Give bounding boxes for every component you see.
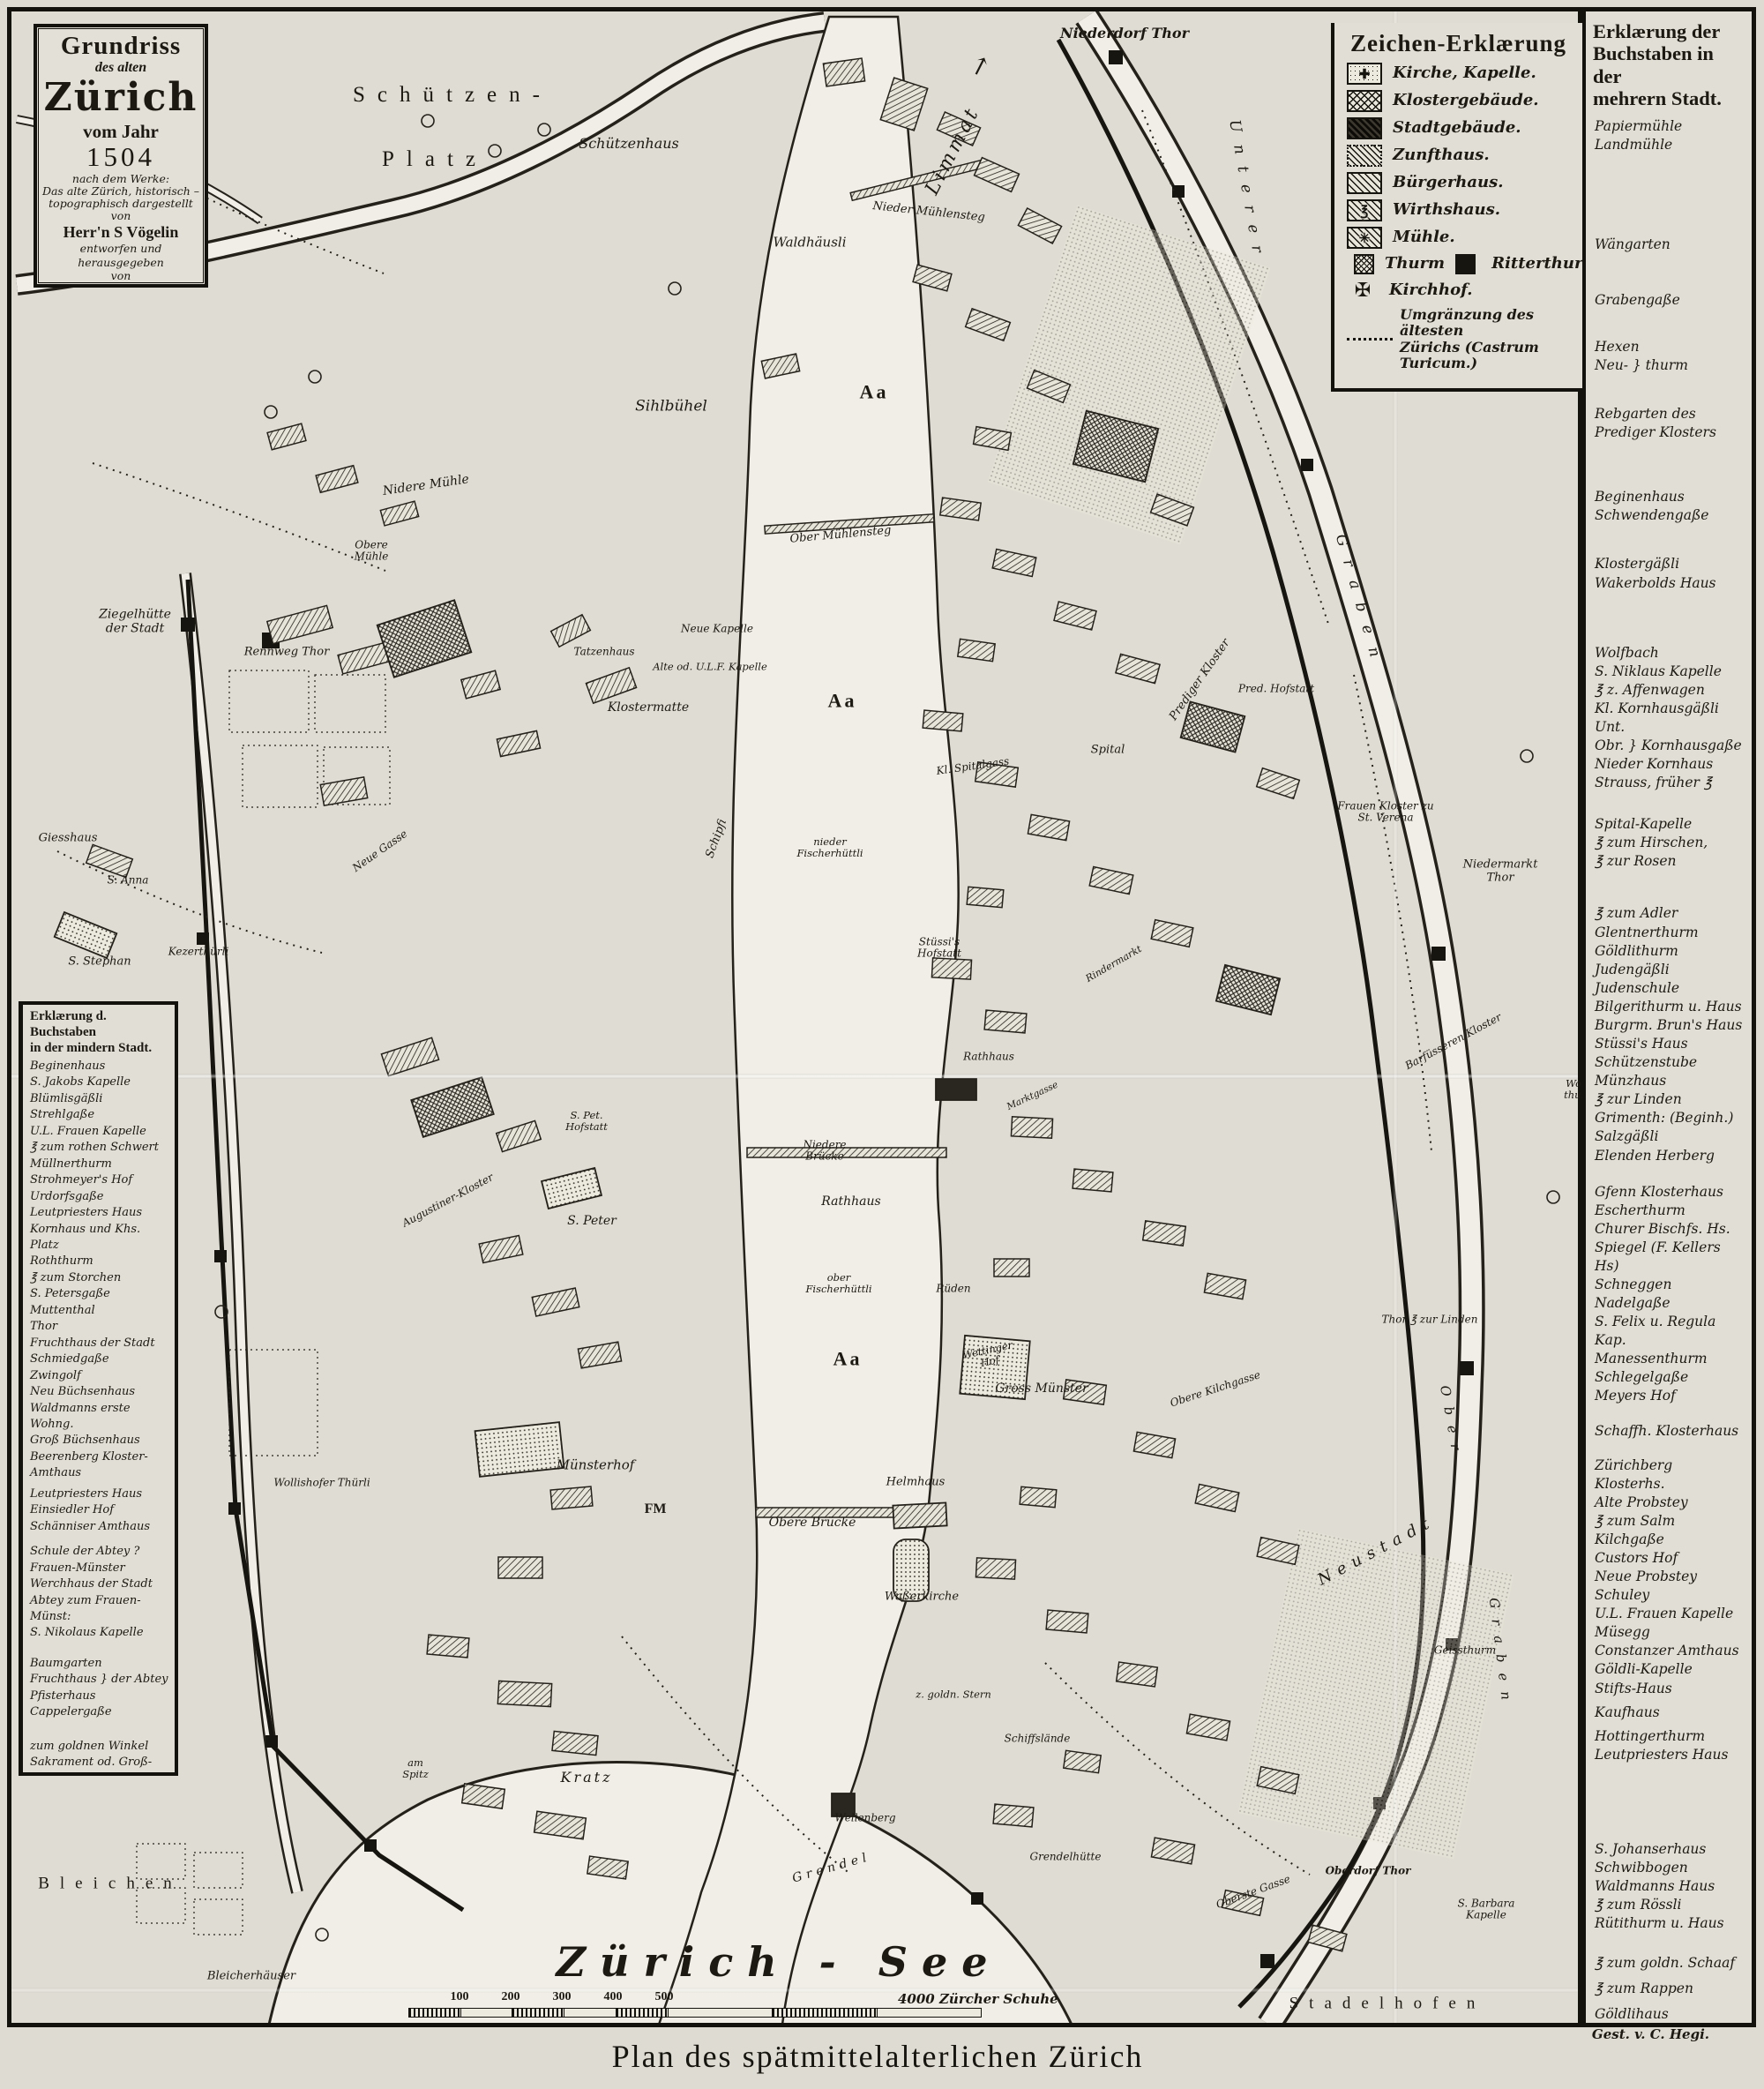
scale-segment xyxy=(669,2009,773,2017)
key-item: Spiegel (F. Kellers Hs) xyxy=(1595,1239,1746,1276)
key-item: Groß Büchsenhaus xyxy=(30,1433,171,1449)
key-item: S. Petersgaße xyxy=(30,1286,171,1302)
map-plate: Schützen-PlatzSchützenhausWaldhäusliNied… xyxy=(7,7,1582,2027)
map-label: Waldhäusli xyxy=(773,236,846,251)
key-item: Constanzer Amthaus xyxy=(1595,1642,1746,1660)
map-label: Obere Mühle xyxy=(355,540,389,564)
key-item: Neu Büchsenhaus xyxy=(30,1384,171,1400)
cartouche-line: vom Jahr xyxy=(37,122,205,143)
scale-segment xyxy=(512,2009,564,2017)
key-item: ℥ zum Rössli xyxy=(1595,1896,1746,1914)
key-item: Glentnerthurm xyxy=(1595,924,1746,942)
key-item: Spital-Kapelle xyxy=(1595,815,1746,834)
key-item: zum goldnen Winkel Sakrament od. Groß-Ha… xyxy=(30,1739,171,1776)
map-label: Oberdorf Thor xyxy=(1326,1865,1411,1876)
key-item: Bilgerithurm u. Haus xyxy=(1595,998,1746,1016)
key-item: Roththurm xyxy=(30,1254,171,1269)
major-city-key-list: PapiermühleLandmühleWängartenGrabengaßeH… xyxy=(1595,117,1746,2027)
map-label: Stadelhofen xyxy=(1289,1994,1486,2012)
stadtgebaeude-swatch-icon xyxy=(1347,117,1382,139)
buergerhaus-swatch-icon xyxy=(1347,172,1382,194)
key-item: Elenden Herberg xyxy=(1595,1147,1746,1165)
key-item: Kilchgaße xyxy=(1595,1531,1746,1549)
scale-segment xyxy=(617,2009,669,2017)
map-label: Oberste Gasse xyxy=(1215,1874,1292,1912)
map-label: Wellenberg xyxy=(834,1812,895,1823)
key-item: Leutpriesters Haus xyxy=(1595,1746,1746,1764)
legend-label: Kirchhof. xyxy=(1389,281,1472,300)
key-item: S. Nikolaus Kapelle xyxy=(30,1625,171,1641)
major-city-key-title: Erklærung der Buchstaben in der mehrern … xyxy=(1593,20,1746,110)
key-item: Zwingolf xyxy=(30,1368,171,1384)
map-label: S. Anna xyxy=(108,874,149,886)
wirthshaus-swatch-icon: ℥ xyxy=(1347,199,1382,221)
fold-crease xyxy=(11,1074,1578,1079)
key-item: Rebgarten des Prediger Klosters xyxy=(1595,405,1746,442)
key-item: Klostergäßli Wakerbolds Haus xyxy=(1595,555,1746,592)
map-label: Niedere Brücke xyxy=(803,1140,846,1164)
key-item: Wängarten xyxy=(1595,236,1746,254)
map-label: Schipfi xyxy=(704,818,729,860)
map-label: Tatzenhaus xyxy=(574,646,635,657)
scale-bar: 100200300400500 4000 Zürcher Schuhe xyxy=(408,1993,990,2023)
map-label: Platz xyxy=(382,147,488,172)
key-item: S. Johanserhaus xyxy=(1595,1840,1746,1859)
cartouche-line: Herr'n S Vögelin xyxy=(37,223,205,241)
key-item: Göldlihaus xyxy=(1595,2005,1746,2024)
key-item: Blümlisgäßli xyxy=(30,1091,171,1107)
key-item: Göldlithurm xyxy=(1595,942,1746,961)
map-label: S. Peter xyxy=(567,1215,617,1229)
key-item: Strauss, früher ℥ xyxy=(1595,774,1746,792)
scale-tick-label: 400 xyxy=(604,1990,623,2004)
minor-city-key-list: BeginenhausS. Jakobs KapelleBlümlisgäßli… xyxy=(30,1059,171,1776)
key-item: Schänniser Amthaus xyxy=(30,1519,171,1535)
key-item: ℥ zur Rosen xyxy=(1595,852,1746,871)
map-label: Spital xyxy=(1091,745,1125,758)
key-item: Beerenberg Kloster-Amthaus xyxy=(30,1449,171,1482)
map-label: Unterer xyxy=(1225,118,1267,266)
legend-row-zunft: Zunfthaus. xyxy=(1347,145,1597,167)
map-label: Obere Brücke xyxy=(769,1516,856,1531)
major-city-key: Erklærung der Buchstaben in der mehrern … xyxy=(1582,7,1756,2027)
map-label: Graben xyxy=(1332,533,1387,673)
map-label: Neue Gasse xyxy=(350,828,409,875)
map-label: ober Fischerhüttli xyxy=(805,1272,871,1295)
key-item: Müllnerthurm xyxy=(30,1157,171,1172)
key-item: Schneggen xyxy=(1595,1276,1746,1294)
map-label: nieder Fischerhüttli xyxy=(796,836,863,859)
key-item: ℥ zum Rappen xyxy=(1595,1980,1746,1998)
legend-row-muehle: ✳ Mühle. xyxy=(1347,227,1597,249)
map-sheet: Schützen-PlatzSchützenhausWaldhäusliNied… xyxy=(0,0,1764,2089)
key-item: Alte Probstey xyxy=(1595,1494,1746,1512)
map-label: S. Barbara Kapelle xyxy=(1440,1898,1532,1922)
kirche-swatch-icon: ✚ xyxy=(1347,63,1382,85)
key-item: Kornhaus und Khs. Platz xyxy=(30,1222,171,1254)
map-label: Stüssi's Hofstatt xyxy=(917,937,961,961)
key-item: Meyers Hof xyxy=(1595,1387,1746,1405)
map-label: Prediger Kloster xyxy=(1168,637,1233,723)
scale-bar-rule xyxy=(408,2008,982,2018)
map-label: Nieder Mühlensteg xyxy=(872,200,986,225)
key-item: S. Niklaus Kapelle xyxy=(1595,663,1746,681)
key-item: Schule der Abtey ? xyxy=(30,1544,171,1560)
scale-unit-label: 4000 Zürcher Schuhe xyxy=(898,1991,1058,2007)
ritterthurm-swatch-icon xyxy=(1455,254,1476,274)
muehle-swatch-icon: ✳ xyxy=(1347,227,1382,249)
scale-segment xyxy=(773,2009,877,2017)
key-item: Judengäßli xyxy=(1595,961,1746,979)
key-item: Abtey zum Frauen-Münst: xyxy=(30,1593,171,1626)
map-label: Nidere Mühle xyxy=(382,473,470,498)
scale-segment xyxy=(461,2009,513,2017)
map-label: Rathhaus xyxy=(821,1195,880,1209)
key-item: Unt. Obr. } Kornhausgaße xyxy=(1595,718,1746,755)
plate-caption: Plan des spätmittelalterlichen Zürich xyxy=(0,2038,1755,2075)
map-label: Rindermarkt xyxy=(1084,944,1144,985)
legend-label: Klostergebäude. xyxy=(1393,92,1539,110)
key-item: Burgrm. Brun's Haus xyxy=(1595,1016,1746,1035)
map-label: Marktgasse xyxy=(1005,1080,1060,1112)
legend-label: Stadtgebäude. xyxy=(1393,119,1521,138)
legend-row-umgraenzung: Umgränzung des ältesten Zürichs (Castrum… xyxy=(1347,307,1597,372)
map-label: Rüden xyxy=(936,1283,970,1294)
map-label: Kl. Spitalgass xyxy=(936,756,1010,778)
legend-row-thurm: Thurm Ritterthurm. xyxy=(1347,254,1597,274)
key-item: Custors Hof xyxy=(1595,1549,1746,1568)
legend-row-buerger: Bürgerhaus. xyxy=(1347,172,1597,194)
map-label: Obere Kilchgasse xyxy=(1169,1369,1262,1410)
key-item: Strohmeyer's Hof xyxy=(30,1172,171,1188)
map-label: Graben xyxy=(1486,1597,1514,1711)
key-item: Escherthurm xyxy=(1595,1202,1746,1220)
cartouche-line: des alten xyxy=(37,60,205,76)
key-item: Leutpriesters Haus xyxy=(30,1205,171,1221)
map-label: Barfüsseren Kloster xyxy=(1403,1012,1504,1073)
key-item: Rütithurm u. Haus xyxy=(1595,1914,1746,1933)
map-label: Wollishofer Thürli xyxy=(273,1477,370,1488)
cartouche-line: 1504 xyxy=(37,142,205,173)
map-label: Bleichen xyxy=(38,1874,183,1892)
key-item: Schlegelgaße xyxy=(1595,1368,1746,1387)
key-item: S. Jakobs Kapelle xyxy=(30,1074,171,1090)
cartouche-line: Zürich xyxy=(37,76,205,119)
key-item: Schaffh. Klosterhaus xyxy=(1595,1422,1746,1441)
legend-row-wirth: ℥ Wirthshaus. xyxy=(1347,199,1597,221)
scale-tick-label: 100 xyxy=(451,1990,469,2004)
legend-label: Bürgerhaus. xyxy=(1393,174,1504,192)
map-label: Grendelhütte xyxy=(1030,1851,1102,1862)
key-item: Gfenn Klosterhaus xyxy=(1595,1183,1746,1202)
map-label: Geissthurm xyxy=(1434,1644,1496,1656)
key-item: Cappelergaße xyxy=(30,1704,171,1720)
key-item: Schwibbogen xyxy=(1595,1859,1746,1877)
key-item: Frauen-Münster xyxy=(30,1561,171,1576)
title-cartouche: Grundrissdes altenZürichvom Jahr1504nach… xyxy=(34,24,208,288)
map-label: Klostermatte xyxy=(608,701,689,715)
key-item: Churer Bischfs. Hs. xyxy=(1595,1220,1746,1239)
legend-row-kirche: ✚ Kirche, Kapelle. xyxy=(1347,63,1597,85)
key-item: Beginenhaus Schwendengaße xyxy=(1595,488,1746,525)
cartouche-line: Grundriss xyxy=(37,32,205,60)
map-label: Kratz xyxy=(561,1770,613,1786)
map-label: Frauen Kloster zu St. Verena xyxy=(1337,801,1433,825)
cartouche-line: nach dem Werke: xyxy=(37,173,205,185)
map-label: Waßerkirche xyxy=(885,1591,959,1605)
key-item: ℥ zum Hirschen, xyxy=(1595,834,1746,852)
key-item: Schützenstube xyxy=(1595,1053,1746,1072)
cartouche-line: Das alte Zürich, historisch – xyxy=(37,185,205,198)
map-label: Aa xyxy=(860,382,889,404)
map-label: Wettinger Hof xyxy=(961,1339,1016,1372)
key-item: Urdorfsgaße xyxy=(30,1189,171,1205)
cartouche-line: entworfen und herausgegeben xyxy=(37,242,205,269)
key-item: Grimenth: (Beginh.) xyxy=(1595,1109,1746,1127)
legend-row-kloster: Klostergebäude. xyxy=(1347,90,1597,112)
scale-segment xyxy=(409,2009,461,2017)
map-label: Aa xyxy=(828,691,857,713)
scale-tick-label: 500 xyxy=(655,1990,674,2004)
map-label: Rennweg Thor xyxy=(244,647,330,660)
key-item: Kaufhaus xyxy=(1595,1703,1746,1722)
key-item: Grabengaße xyxy=(1595,291,1746,310)
legend-label: Wirthshaus. xyxy=(1393,201,1500,220)
key-item: Göldli-Kapelle xyxy=(1595,1660,1746,1679)
legend-title: Zeichen-Erklærung xyxy=(1350,30,1597,57)
map-label: Thor ℥ zur Linden xyxy=(1382,1314,1478,1325)
map-label: FM xyxy=(645,1501,667,1517)
legend-row-kirchhof: ✠ Kirchhof. xyxy=(1347,280,1597,302)
key-item: ℥ zum Storchen xyxy=(30,1270,171,1286)
map-label: Schützenhaus xyxy=(579,136,679,152)
map-label: Schützen- xyxy=(353,83,552,108)
scale-tick-label: 200 xyxy=(502,1990,520,2004)
minor-city-key-title: Erklærung d. Buchstaben in der mindern S… xyxy=(30,1008,171,1056)
map-label: Niederdorf Thor xyxy=(1060,26,1189,41)
key-item: ℥ zum Salm xyxy=(1595,1512,1746,1531)
key-item: ℥ zum rothen Schwert xyxy=(30,1140,171,1156)
key-item: Nadelgaße xyxy=(1595,1294,1746,1313)
cartouche-line: Heinrich Keller xyxy=(37,284,205,288)
key-item: Kl. Kornhausgäßli xyxy=(1595,700,1746,718)
key-item: Leutpriesters Haus xyxy=(30,1486,171,1502)
map-label: am Spitz xyxy=(402,1757,429,1780)
map-label: Ober xyxy=(1437,1384,1464,1462)
key-item: Müsegg xyxy=(1595,1623,1746,1642)
key-item: Manessenthurm xyxy=(1595,1350,1746,1368)
legend-label: Mühle. xyxy=(1393,228,1455,247)
map-label: Schiffslände xyxy=(1005,1733,1071,1744)
map-label: Augustiner-Kloster xyxy=(400,1172,496,1230)
map-label: Pred. Hofstatt xyxy=(1238,683,1314,694)
key-item: Stifts-Haus xyxy=(1595,1680,1746,1698)
key-item: Hottingerthurm xyxy=(1595,1727,1746,1746)
key-item: Hexen Neu- } thurm xyxy=(1595,338,1746,375)
map-label: S. Stephan xyxy=(68,956,131,970)
key-item: Neue Probstey xyxy=(1595,1568,1746,1586)
map-label: Giesshaus xyxy=(39,833,98,846)
key-item: Beginenhaus xyxy=(30,1059,171,1074)
key-item: Baumgarten Fruchthaus } der Abtey Pfiste… xyxy=(30,1656,171,1704)
map-label: Neue Kapelle xyxy=(681,623,753,634)
legend-box: Zeichen-Erklærung ✚ Kirche, Kapelle. Klo… xyxy=(1331,23,1597,392)
key-item: Werchhaus der Stadt xyxy=(30,1576,171,1592)
key-item: Zürichberg Klosterhs. xyxy=(1595,1456,1746,1494)
key-item: S. Felix u. Regula Kap. xyxy=(1595,1313,1746,1350)
map-label: Alte od. U.L.F. Kapelle xyxy=(653,662,767,673)
key-item: U.L. Frauen Kapelle xyxy=(1595,1605,1746,1623)
key-item: Schmiedgaße xyxy=(30,1351,171,1367)
scale-tick-label: 300 xyxy=(553,1990,572,2004)
map-label: Ober Mühlensteg xyxy=(789,525,892,547)
scale-segment xyxy=(878,2009,981,2017)
thurm-swatch-icon xyxy=(1354,254,1374,274)
key-item: Wolfbach xyxy=(1595,644,1746,663)
map-label: Sihlbühel xyxy=(635,398,707,415)
key-item: Papiermühle xyxy=(1595,117,1746,136)
map-label: Gross Münster xyxy=(995,1382,1088,1396)
key-item: Schuley xyxy=(1595,1586,1746,1605)
dotted-boundary-icon xyxy=(1347,338,1393,341)
map-label: Limmat xyxy=(922,103,985,199)
legend-label: Umgränzung des ältesten Zürichs (Castrum… xyxy=(1400,307,1597,372)
map-label: Helmhaus xyxy=(886,1477,946,1490)
key-item: Thor xyxy=(30,1319,171,1335)
zunfthaus-swatch-icon xyxy=(1347,145,1382,167)
key-item: Strehlgaße xyxy=(30,1107,171,1123)
map-label: → xyxy=(963,50,998,81)
key-item: Münzhaus xyxy=(1595,1072,1746,1090)
key-item: ℥ zum goldn. Schaaf xyxy=(1595,1954,1746,1973)
minor-city-key: Erklærung d. Buchstaben in der mindern S… xyxy=(19,1001,178,1776)
map-label: Rathhaus xyxy=(963,1051,1014,1062)
map-label: Neustadt xyxy=(1315,1512,1439,1589)
legend-label: Thurm xyxy=(1385,255,1445,273)
scale-segment xyxy=(564,2009,617,2017)
map-label: Münsterhof xyxy=(557,1458,635,1473)
map-label: Zürich - See xyxy=(556,1940,1001,1986)
kloster-swatch-icon xyxy=(1347,90,1382,112)
key-item: Landmühle xyxy=(1595,136,1746,154)
legend-label: Zunfthaus. xyxy=(1393,146,1490,165)
key-item: ℥ z. Affenwagen xyxy=(1595,681,1746,700)
legend-label: Kirche, Kapelle. xyxy=(1393,64,1536,83)
map-label: Aa xyxy=(833,1349,863,1371)
kirchhof-symbol-icon: ✠ xyxy=(1347,280,1379,302)
map-label: Bleicherhäuser xyxy=(207,1971,295,1984)
key-item: U.L. Frauen Kapelle xyxy=(30,1124,171,1140)
map-label: Ziegelhütte der Stadt xyxy=(99,608,171,635)
map-label: Niedermarkt Thor xyxy=(1461,858,1539,884)
key-item: Judenschule xyxy=(1595,979,1746,998)
key-item: Einsiedler Hof xyxy=(30,1502,171,1518)
map-label: Kezerthürli xyxy=(168,946,229,957)
cartouche-line: topographisch dargestellt von xyxy=(37,198,205,222)
map-label: z. goldn. Stern xyxy=(916,1689,991,1701)
key-item: Waldmanns erste Wohng. xyxy=(30,1401,171,1434)
key-item: Fruchthaus der Stadt xyxy=(30,1336,171,1351)
key-item: Stüssi's Haus xyxy=(1595,1035,1746,1053)
key-item: ℥ zur Linden xyxy=(1595,1090,1746,1109)
key-item: Waldmanns Haus xyxy=(1595,1877,1746,1896)
key-item: ℥ zum Adler xyxy=(1595,904,1746,923)
map-label: S. Pet. Hofstatt xyxy=(565,1110,608,1133)
legend-row-stadt: Stadtgebäude. xyxy=(1347,117,1597,139)
key-item: Salzgäßli xyxy=(1595,1127,1746,1146)
key-item: Muttenthal xyxy=(30,1303,171,1319)
cartouche-line: von xyxy=(37,269,205,283)
key-item: Nieder Kornhaus xyxy=(1595,755,1746,774)
map-label: Grendel xyxy=(791,1851,873,1886)
